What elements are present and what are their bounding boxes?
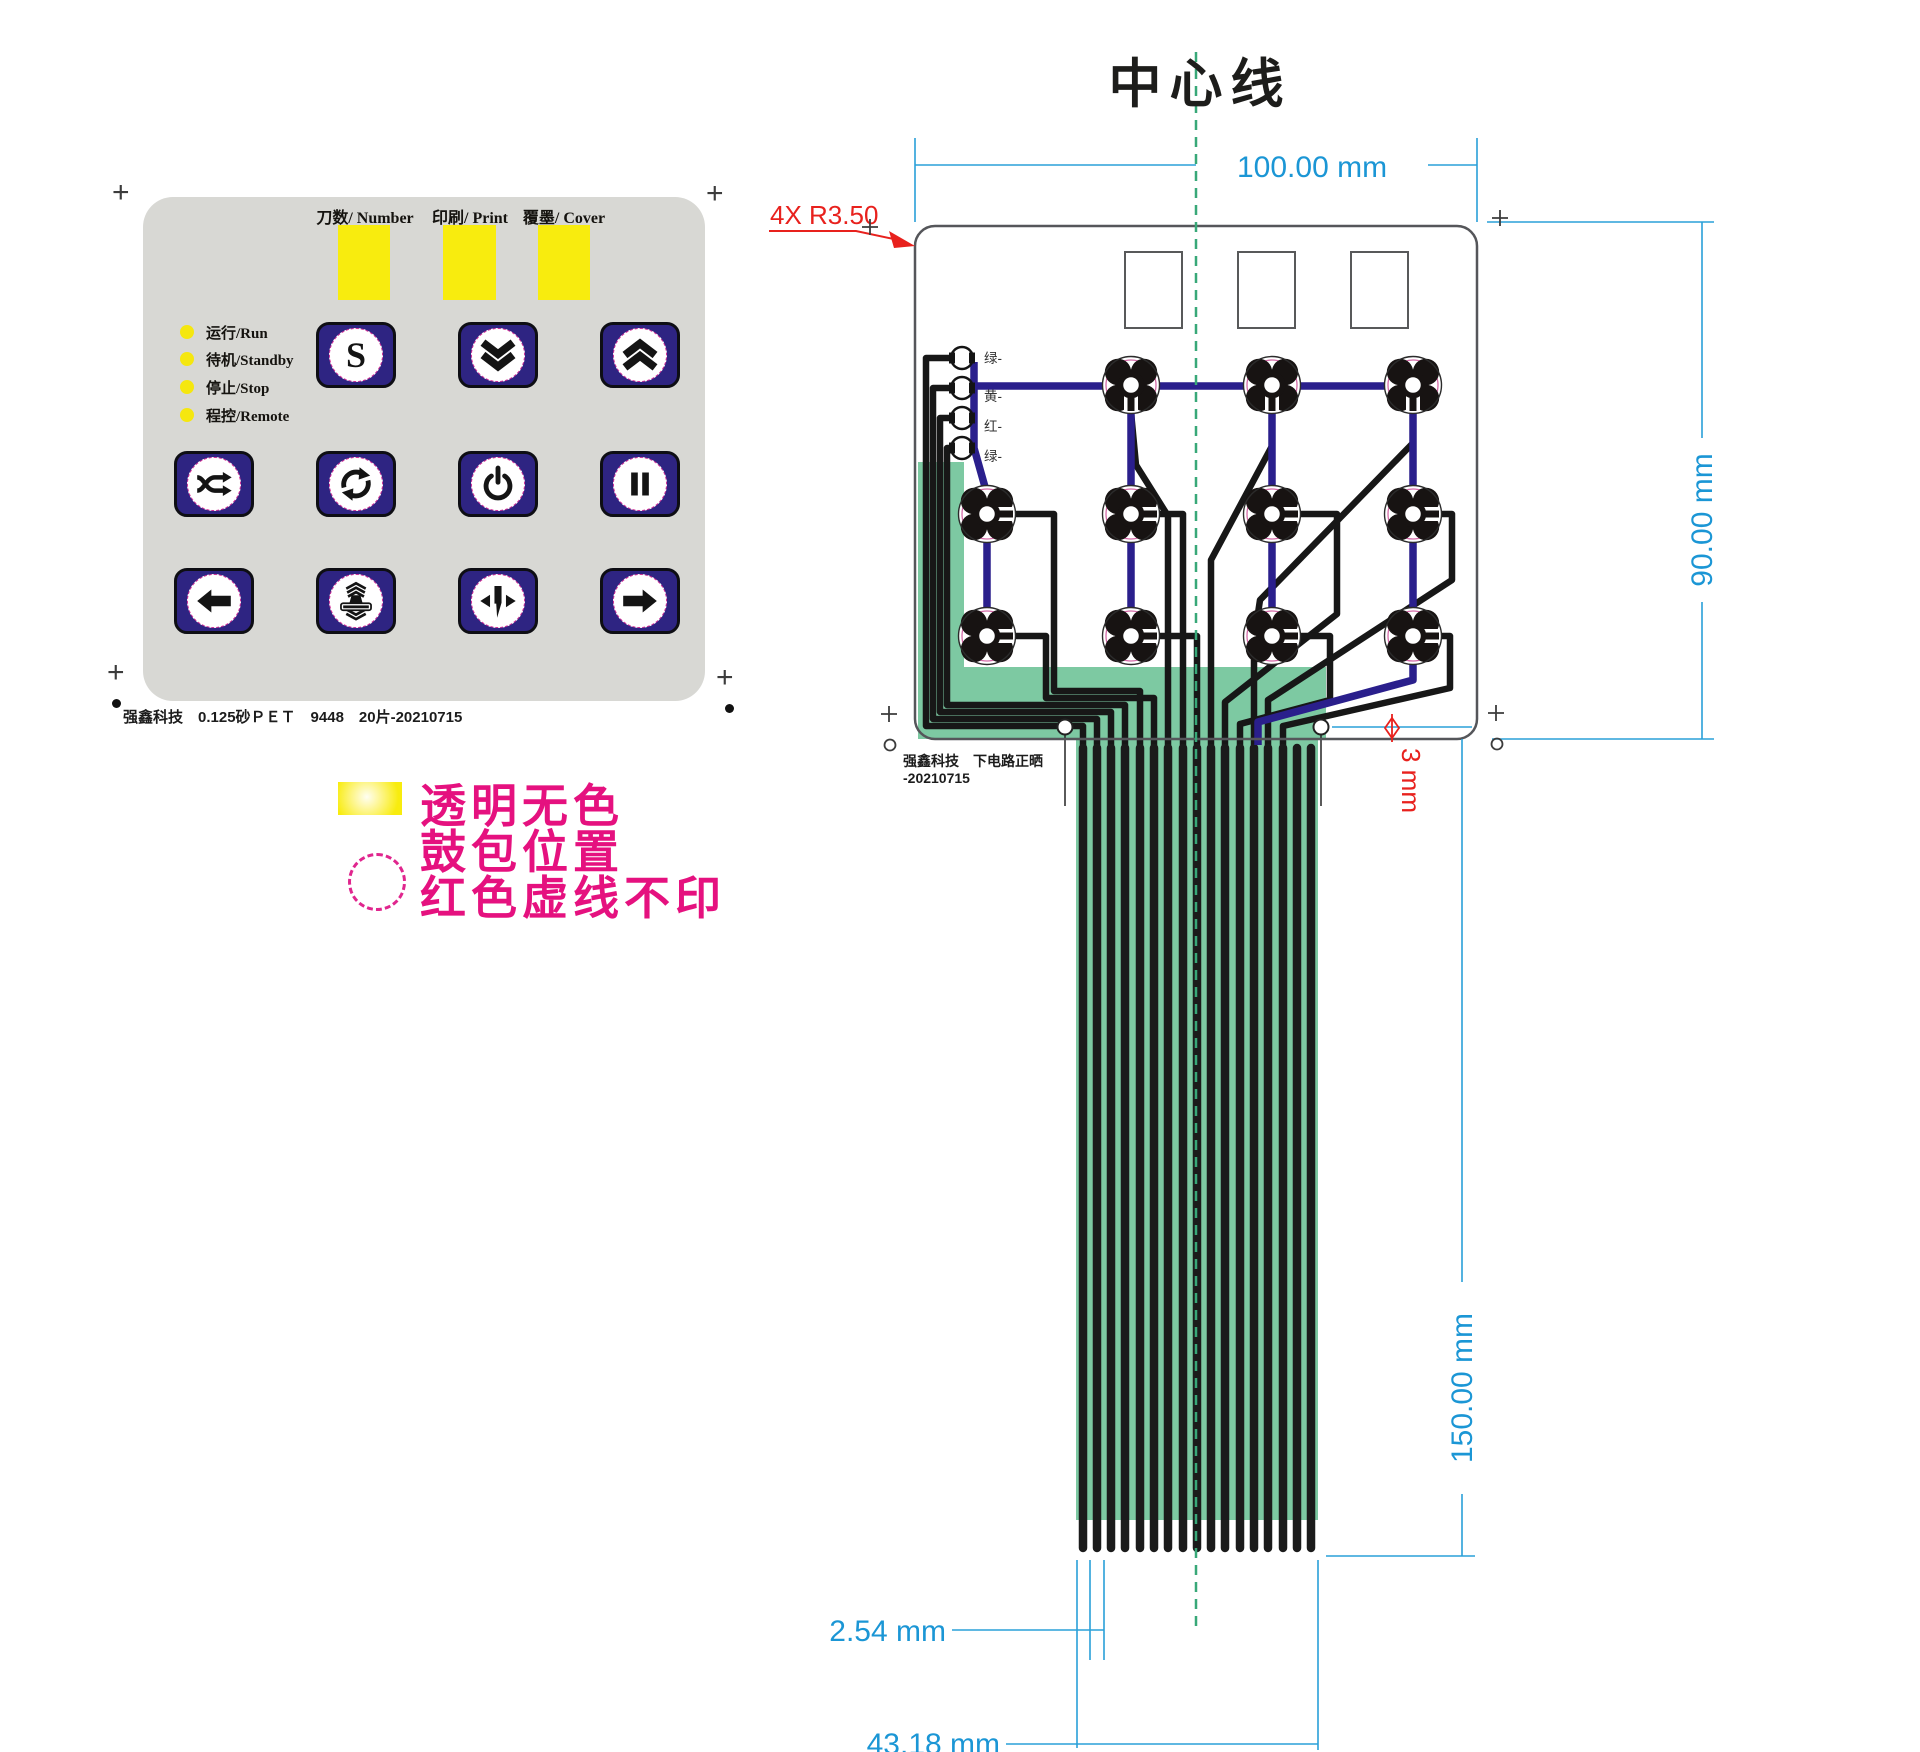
tooling-holes: [1058, 720, 1329, 807]
drawing-title: 中心线: [1109, 55, 1292, 114]
chevrons-down-icon: [475, 332, 521, 378]
led-label: 待机/Standby: [206, 349, 294, 370]
arrow-right-icon: [617, 578, 663, 624]
key-face: [329, 457, 383, 511]
circuit-note-line2: -20210715: [903, 770, 970, 786]
dim-board-width: 100.00 mm: [1237, 151, 1387, 184]
led-remote: 程控/Remote: [180, 406, 289, 424]
registration-plus-icon: +: [706, 179, 724, 209]
pause-icon: [617, 461, 663, 507]
coverlay-green-area: [918, 462, 1326, 1520]
led-label: 程控/Remote: [206, 405, 289, 426]
circuit-board-outline: [915, 226, 1477, 739]
key-shuffle[interactable]: [174, 451, 254, 517]
key-face: S: [329, 328, 383, 382]
press-icon: [333, 578, 379, 624]
shuffle-icon: [191, 461, 237, 507]
key-arrow-left[interactable]: [174, 568, 254, 634]
led-run: 运行/Run: [180, 323, 268, 341]
led-pad-label: 红-: [984, 419, 1002, 434]
chevrons-up-icon: [617, 332, 663, 378]
contact-pad: [1244, 486, 1301, 543]
black-traces: [926, 358, 1452, 820]
key-face: [187, 457, 241, 511]
led-indicator-icon: [180, 380, 194, 394]
connector-fingers: [1083, 748, 1311, 1548]
key-face: [471, 328, 525, 382]
key-arrow-right[interactable]: [600, 568, 680, 634]
contact-pad: [1244, 608, 1301, 665]
led-standby: 待机/Standby: [180, 350, 294, 368]
key-face: [471, 457, 525, 511]
led-indicator-icon: [180, 325, 194, 339]
circuit-board-edge: [915, 226, 1477, 739]
key-s[interactable]: S: [316, 322, 396, 388]
display-window-print: [443, 225, 496, 300]
led-pad: [949, 407, 975, 429]
key-face: [613, 328, 667, 382]
legend-dashed-circle-icon: [348, 853, 406, 911]
led-indicator-icon: [180, 352, 194, 366]
window-cutouts: [1125, 252, 1408, 328]
led-pad-label: 绿-: [984, 351, 1002, 366]
display-window-number: [338, 225, 390, 300]
legend-transparent-window-swatch: [338, 782, 402, 815]
contact-pad: [1244, 357, 1301, 414]
registration-dot-icon: [725, 704, 734, 713]
membrane-switch-drawing-sheet: 刀数/ Number 印刷/ Print 覆墨/ Cover 运行/Run 待机…: [0, 0, 1920, 1752]
dim-tail-width: 43.18 mm: [867, 1728, 1000, 1752]
circuit-note-line1: 强鑫科技 下电路正晒: [903, 753, 1043, 769]
corner-radius-callout: 4X R3.50: [769, 200, 915, 248]
key-face: [613, 457, 667, 511]
key-press[interactable]: [316, 568, 396, 634]
contact-pad: [1103, 486, 1160, 543]
window-label-cover: 覆墨/ Cover: [489, 204, 639, 222]
key-chevrons-down[interactable]: [458, 322, 538, 388]
key-power[interactable]: [458, 451, 538, 517]
contact-pad: [1103, 357, 1160, 414]
registration-plus-icon: +: [112, 178, 130, 208]
arrow-left-icon: [191, 578, 237, 624]
corner-radius-text: 4X R3.50: [770, 200, 878, 230]
led-pad: [949, 437, 975, 459]
dim-finger-pitch: 2.54 mm: [829, 1615, 946, 1648]
circuit-registration-marks: [862, 210, 1508, 751]
led-pad-label: 黄-: [984, 389, 1002, 404]
key-split[interactable]: [458, 568, 538, 634]
contact-pad: [1385, 608, 1442, 665]
led-pad: [949, 347, 975, 369]
led-pad: [949, 377, 975, 399]
display-window-cover: [538, 225, 590, 300]
key-chevrons-up[interactable]: [600, 322, 680, 388]
contact-pad: [1385, 486, 1442, 543]
power-icon: [475, 461, 521, 507]
led-pad-label: 绿-: [984, 449, 1002, 464]
key-face: [187, 574, 241, 628]
registration-plus-icon: +: [716, 663, 734, 693]
hole-diameter-text: 3 mm: [1396, 748, 1426, 813]
cycle-icon: [333, 461, 379, 507]
contact-pad: [1385, 357, 1442, 414]
split-icon: [475, 578, 521, 624]
dimension-lines: [915, 138, 1714, 1750]
key-face: [329, 574, 383, 628]
key-face: [613, 574, 667, 628]
key-face: [471, 574, 525, 628]
keypad-footer-note: 强鑫科技 0.125砂ＰＥＴ 9448 20片-20210715: [123, 706, 462, 727]
dim-tail-length: 150.00 mm: [1446, 1313, 1479, 1463]
led-label: 运行/Run: [206, 322, 268, 343]
hole-diameter-callout: 3 mm: [1385, 714, 1426, 813]
contact-pad: [1103, 608, 1160, 665]
contact-pad: [959, 486, 1016, 543]
contact-pad: [959, 608, 1016, 665]
led-label: 停止/Stop: [206, 377, 269, 398]
blue-traces: [963, 362, 1413, 745]
registration-dot-icon: [112, 699, 121, 708]
key-pause[interactable]: [600, 451, 680, 517]
registration-plus-icon: +: [107, 658, 125, 688]
key-cycle[interactable]: [316, 451, 396, 517]
led-indicator-icon: [180, 408, 194, 422]
dim-board-height: 90.00 mm: [1686, 453, 1719, 586]
led-stop: 停止/Stop: [180, 378, 269, 396]
legend-line-3: 红色虚线不印: [420, 862, 726, 928]
s-label: S: [346, 337, 366, 373]
